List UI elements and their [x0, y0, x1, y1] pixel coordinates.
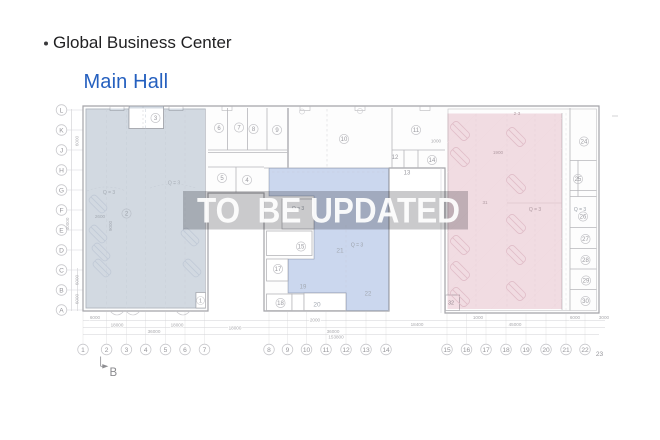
svg-text:11: 11 — [413, 128, 420, 134]
svg-text:2-3: 2-3 — [514, 111, 521, 116]
svg-text:2: 2 — [105, 347, 109, 354]
svg-text:4: 4 — [144, 347, 148, 354]
svg-text:9000: 9000 — [108, 220, 113, 231]
svg-text:H: H — [59, 167, 64, 174]
svg-text:6000: 6000 — [570, 315, 581, 320]
svg-text:L: L — [60, 107, 64, 114]
svg-text:K: K — [59, 127, 64, 134]
svg-text:E: E — [59, 227, 64, 234]
svg-text:Main Hall: Main Hall — [84, 71, 169, 93]
svg-text:1: 1 — [199, 299, 202, 305]
svg-text:30: 30 — [582, 299, 589, 305]
svg-text:27: 27 — [582, 237, 589, 243]
svg-text:36000: 36000 — [148, 329, 161, 334]
svg-text:D: D — [59, 247, 64, 254]
svg-text:40000: 40000 — [65, 217, 70, 230]
svg-text:3000: 3000 — [599, 315, 610, 320]
svg-text:24: 24 — [581, 140, 588, 146]
svg-text:12: 12 — [342, 347, 350, 354]
svg-text:22: 22 — [365, 292, 372, 298]
svg-text:15: 15 — [443, 347, 451, 354]
svg-text:16: 16 — [463, 347, 471, 354]
svg-text:11: 11 — [323, 347, 330, 354]
svg-text:6000: 6000 — [75, 135, 80, 146]
svg-text:F: F — [59, 207, 63, 214]
svg-text:15: 15 — [298, 245, 305, 251]
svg-text:B: B — [110, 367, 118, 379]
svg-text:45000: 45000 — [509, 322, 522, 327]
svg-text:Q = 3: Q = 3 — [168, 181, 181, 187]
svg-text:J: J — [60, 147, 63, 154]
svg-text:20: 20 — [542, 347, 550, 354]
svg-text:B: B — [59, 287, 64, 294]
svg-text:19: 19 — [522, 347, 530, 354]
svg-text:14: 14 — [429, 158, 436, 164]
svg-text:12: 12 — [392, 155, 399, 161]
svg-text:20: 20 — [313, 302, 321, 309]
svg-text:18400: 18400 — [411, 322, 424, 327]
svg-text:6: 6 — [183, 347, 187, 354]
svg-text:7: 7 — [203, 347, 207, 354]
svg-text:TO BE UPDATED: TO BE UPDATED — [197, 192, 460, 231]
svg-text:Q = 3: Q = 3 — [574, 207, 587, 213]
svg-text:21: 21 — [336, 248, 344, 255]
svg-text:22: 22 — [581, 347, 589, 354]
svg-text:23: 23 — [596, 351, 604, 358]
svg-text:13: 13 — [362, 347, 370, 354]
svg-text:Global Business Center: Global Business Center — [53, 33, 232, 52]
svg-text:153800: 153800 — [328, 335, 344, 340]
svg-text:17: 17 — [482, 347, 490, 354]
svg-text:1900: 1900 — [493, 150, 504, 155]
svg-text:A: A — [59, 307, 64, 314]
svg-text:28: 28 — [582, 258, 589, 264]
svg-text:6000: 6000 — [90, 315, 101, 320]
svg-text:6000: 6000 — [75, 274, 80, 285]
svg-text:14: 14 — [382, 347, 390, 354]
svg-text:17: 17 — [275, 267, 282, 273]
svg-text:25: 25 — [575, 177, 582, 183]
svg-text:Q = 3: Q = 3 — [103, 190, 116, 196]
svg-text:18: 18 — [277, 301, 284, 307]
svg-text:2600: 2600 — [95, 214, 106, 219]
svg-text:8: 8 — [267, 347, 271, 354]
svg-text:C: C — [59, 267, 64, 274]
svg-text:19: 19 — [300, 285, 307, 291]
svg-text:Q = 3: Q = 3 — [351, 243, 364, 249]
svg-text:6000: 6000 — [75, 293, 80, 304]
svg-text:1000: 1000 — [431, 139, 442, 144]
svg-text:18000: 18000 — [229, 326, 242, 331]
svg-text:G: G — [59, 187, 64, 194]
svg-text:10: 10 — [303, 347, 311, 354]
svg-text:Q = 3: Q = 3 — [529, 207, 542, 213]
svg-text:1: 1 — [81, 347, 85, 354]
svg-text:18000: 18000 — [111, 323, 124, 328]
svg-text:13: 13 — [404, 171, 411, 177]
svg-text:2000: 2000 — [310, 318, 321, 323]
svg-text:5: 5 — [164, 347, 168, 354]
svg-text:3: 3 — [125, 347, 129, 354]
svg-text:26: 26 — [580, 215, 587, 221]
svg-text:29: 29 — [583, 279, 590, 285]
svg-text:9: 9 — [286, 347, 290, 354]
svg-text:10: 10 — [341, 137, 348, 143]
svg-text:31: 31 — [482, 200, 488, 205]
svg-text:21: 21 — [562, 347, 570, 354]
svg-text:18000: 18000 — [171, 323, 184, 328]
svg-text:36000: 36000 — [327, 329, 340, 334]
svg-text:18: 18 — [502, 347, 510, 354]
svg-text:1000: 1000 — [473, 315, 484, 320]
